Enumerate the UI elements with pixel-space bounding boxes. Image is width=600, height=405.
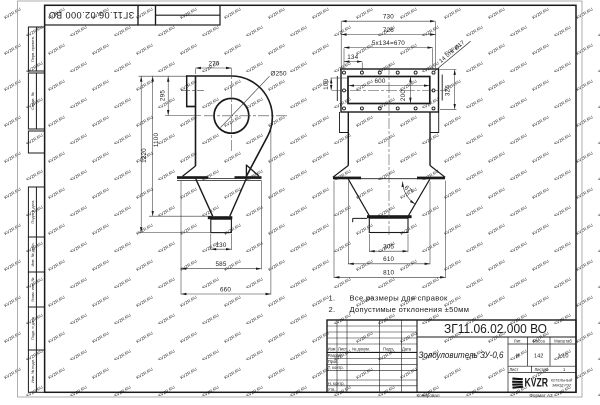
svg-text:Взам. инв. №: Взам. инв. № <box>30 277 35 301</box>
svg-text:1220: 1220 <box>141 148 148 163</box>
svg-text:100: 100 <box>323 78 330 89</box>
svg-text:ЗГ11.06.02.000 ВО: ЗГ11.06.02.000 ВО <box>48 10 134 20</box>
svg-text:Пров.: Пров. <box>328 359 339 364</box>
svg-text:Разраб.: Разраб. <box>328 353 343 358</box>
svg-text:Масса: Масса <box>533 338 546 343</box>
svg-text:И: И <box>516 354 520 360</box>
svg-text:№ докум.: № докум. <box>352 347 370 352</box>
svg-text:ЗАВОД РЭТ: ЗАВОД РЭТ <box>552 383 572 387</box>
svg-text:Дата: Дата <box>402 347 412 352</box>
svg-text:326: 326 <box>444 85 451 96</box>
svg-text:1:10: 1:10 <box>558 354 569 360</box>
svg-text:585: 585 <box>215 261 226 268</box>
svg-text:Ø250: Ø250 <box>271 71 288 78</box>
svg-text:Формат А3: Формат А3 <box>529 393 553 398</box>
svg-text:KVZR: KVZR <box>525 376 549 390</box>
svg-text:ЗГ11.06.02.000 ВО: ЗГ11.06.02.000 ВО <box>444 321 547 336</box>
svg-text:270: 270 <box>208 61 219 68</box>
svg-text:Листов: Листов <box>535 367 548 372</box>
svg-text:1.: 1. <box>329 294 336 303</box>
svg-text:610: 610 <box>383 256 394 263</box>
svg-text:134: 134 <box>347 54 358 61</box>
svg-text:Допустимые отклонения ±50мм: Допустимые отклонения ±50мм <box>350 305 470 314</box>
svg-text:726: 726 <box>383 27 394 34</box>
svg-text:Лист: Лист <box>338 347 347 352</box>
svg-text:305: 305 <box>383 244 394 251</box>
svg-text:1100: 1100 <box>153 133 160 148</box>
svg-text:5х134=670: 5х134=670 <box>372 40 405 47</box>
svg-text:Подп. и дата: Подп. и дата <box>30 316 35 340</box>
svg-text:142: 142 <box>534 354 543 360</box>
svg-text:810: 810 <box>383 270 394 277</box>
svg-text:Инв. № подл.: Инв. № подл. <box>30 359 35 383</box>
svg-text:Золоуловитель ЗУ-0,6: Золоуловитель ЗУ-0,6 <box>419 350 504 360</box>
svg-text:Копировал: Копировал <box>416 393 439 398</box>
svg-text:Лист: Лист <box>510 367 519 372</box>
svg-text:Перв. примен.: Перв. примен. <box>30 36 35 62</box>
svg-text:600: 600 <box>374 78 385 85</box>
svg-text:2.: 2. <box>329 305 336 314</box>
svg-text:Подп. и дата: Подп. и дата <box>30 200 35 224</box>
svg-text:660: 660 <box>220 287 231 294</box>
svg-text:Справ. №: Справ. № <box>30 92 35 110</box>
svg-text:295: 295 <box>160 90 167 101</box>
svg-text:Подп.: Подп. <box>383 347 394 352</box>
svg-text:Все размеры для справок: Все размеры для справок <box>350 294 448 303</box>
svg-text:Лит.: Лит. <box>514 338 522 343</box>
svg-text:130: 130 <box>215 242 226 249</box>
svg-text:Изм: Изм <box>328 347 336 352</box>
svg-text:Н. контр.: Н. контр. <box>328 381 345 386</box>
svg-text:730: 730 <box>383 14 394 21</box>
svg-text:Инв. № дубл.: Инв. № дубл. <box>30 242 35 266</box>
svg-text:Масштаб: Масштаб <box>554 338 572 343</box>
svg-text:Т. контр.: Т. контр. <box>328 365 344 370</box>
svg-text:КОТЕЛЬНЫЙ: КОТЕЛЬНЫЙ <box>551 379 573 383</box>
svg-text:Утв.: Утв. <box>328 387 336 392</box>
svg-text:200: 200 <box>400 90 407 101</box>
